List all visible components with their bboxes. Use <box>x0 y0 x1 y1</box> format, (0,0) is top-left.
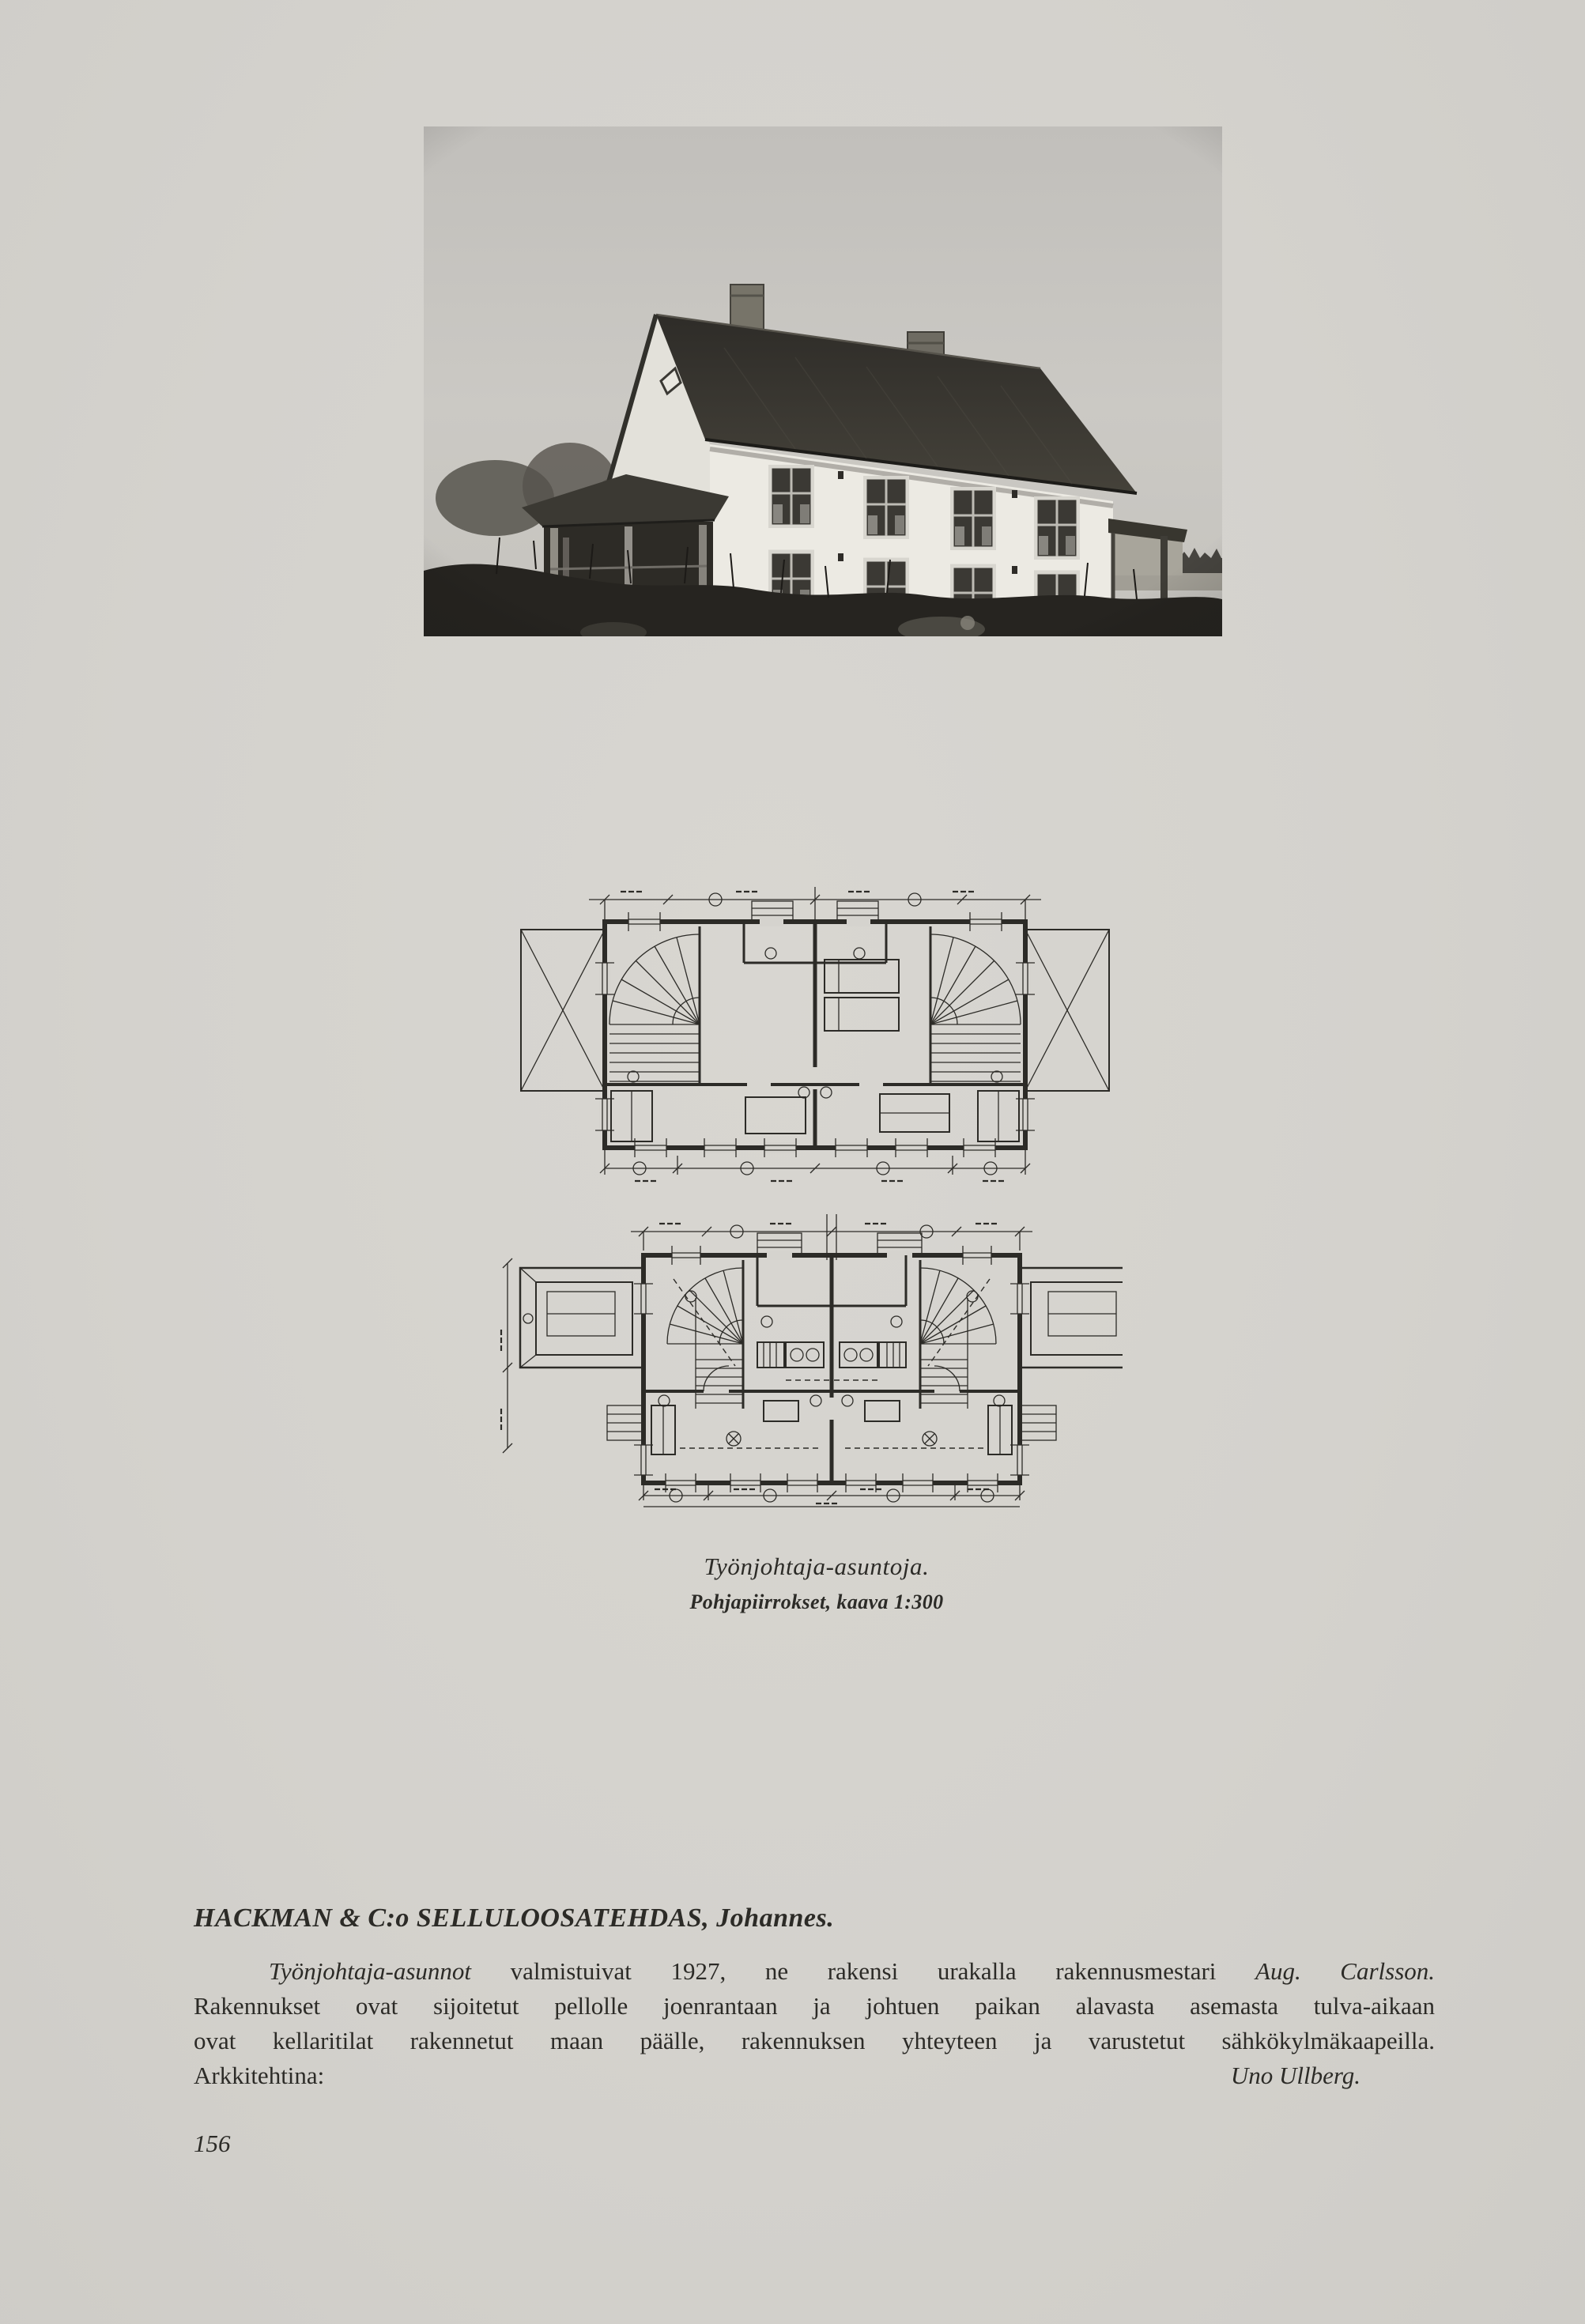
roof-plane-right <box>1025 930 1109 1091</box>
figure-caption: Työnjohtaja-asuntoja. Pohjapiirrokset, k… <box>500 1552 1133 1614</box>
stair-left <box>609 926 700 1085</box>
paragraph-line-1: Työnjohtaja-asunnot valmistuivat 1927, n… <box>194 1954 1435 1989</box>
floor-plan-upper <box>510 884 1120 1194</box>
veranda-plan-left <box>520 1268 643 1368</box>
house-photograph <box>424 126 1222 636</box>
caption-subtitle: Pohjapiirrokset, kaava 1:300 <box>500 1590 1133 1614</box>
photo-vignette <box>424 126 1222 636</box>
unit-left <box>643 1255 832 1454</box>
veranda-plan-right <box>1020 1268 1123 1368</box>
paragraph-line-2: Rakennukset ovat sijoitetut pellolle joe… <box>194 1989 1435 2024</box>
house-photograph-art <box>424 126 1222 636</box>
article-heading: HACKMAN & C:o SELLULOOSATEHDAS, Johannes… <box>194 1903 1435 1934</box>
floor-plan-lower <box>496 1211 1123 1510</box>
paragraph-line-3: ovat kellaritilat rakennetut maan päälle… <box>194 2024 1435 2058</box>
building-walls-upper <box>605 922 1025 1148</box>
scanned-book-page: Työnjohtaja-asuntoja. Pohjapiirrokset, k… <box>0 0 1585 2324</box>
caption-title: Työnjohtaja-asuntoja. <box>500 1552 1133 1581</box>
paragraph-line-1-name: Aug. Carlsson. <box>1255 1957 1435 1985</box>
page-number: 156 <box>194 2130 231 2158</box>
paragraph-line-1-lead: Työnjohtaja-asunnot <box>269 1957 471 1985</box>
stair-right <box>930 926 1021 1085</box>
unit-right <box>832 1255 1020 1454</box>
architect-name: Uno Ullberg. <box>1231 2058 1360 2093</box>
architect-label: Arkkitehtina: <box>194 2058 324 2093</box>
roof-plane-left <box>521 930 605 1091</box>
article-block: HACKMAN & C:o SELLULOOSATEHDAS, Johannes… <box>194 1903 1435 2093</box>
building-walls-lower <box>643 1255 1020 1483</box>
paragraph-line-1-middle: valmistuivat 1927, ne rakensi urakalla r… <box>511 1957 1217 1985</box>
paragraph-line-4: Arkkitehtina: Uno Ullberg. <box>194 2058 1435 2093</box>
